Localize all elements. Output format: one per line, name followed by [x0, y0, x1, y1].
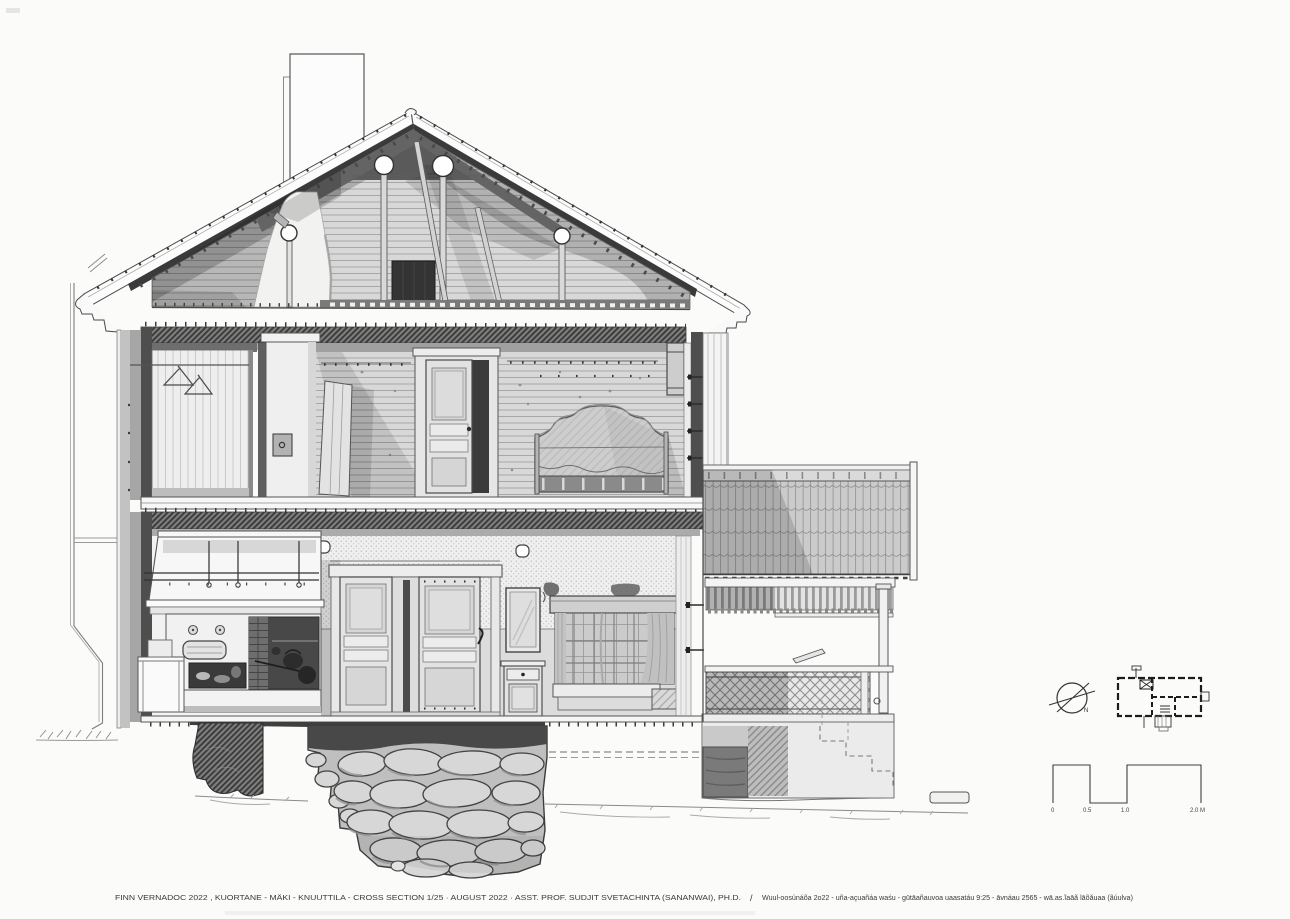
svg-text:1.0: 1.0 — [1121, 808, 1130, 814]
svg-text:0.5: 0.5 — [1083, 808, 1092, 814]
svg-text:2.0 M: 2.0 M — [1190, 808, 1205, 814]
svg-text:N: N — [1084, 708, 1088, 714]
svg-text:Wuul-oosúnáõa 2o22 - uña-açuañ: Wuul-oosúnáõa 2o22 - uña-açuañáa waśu - … — [762, 895, 1133, 902]
svg-text:FINN VERNADOC 2022 , KUORTA: FINN VERNADOC 2022 , KUORTANE - MÄKI - K… — [115, 894, 741, 902]
